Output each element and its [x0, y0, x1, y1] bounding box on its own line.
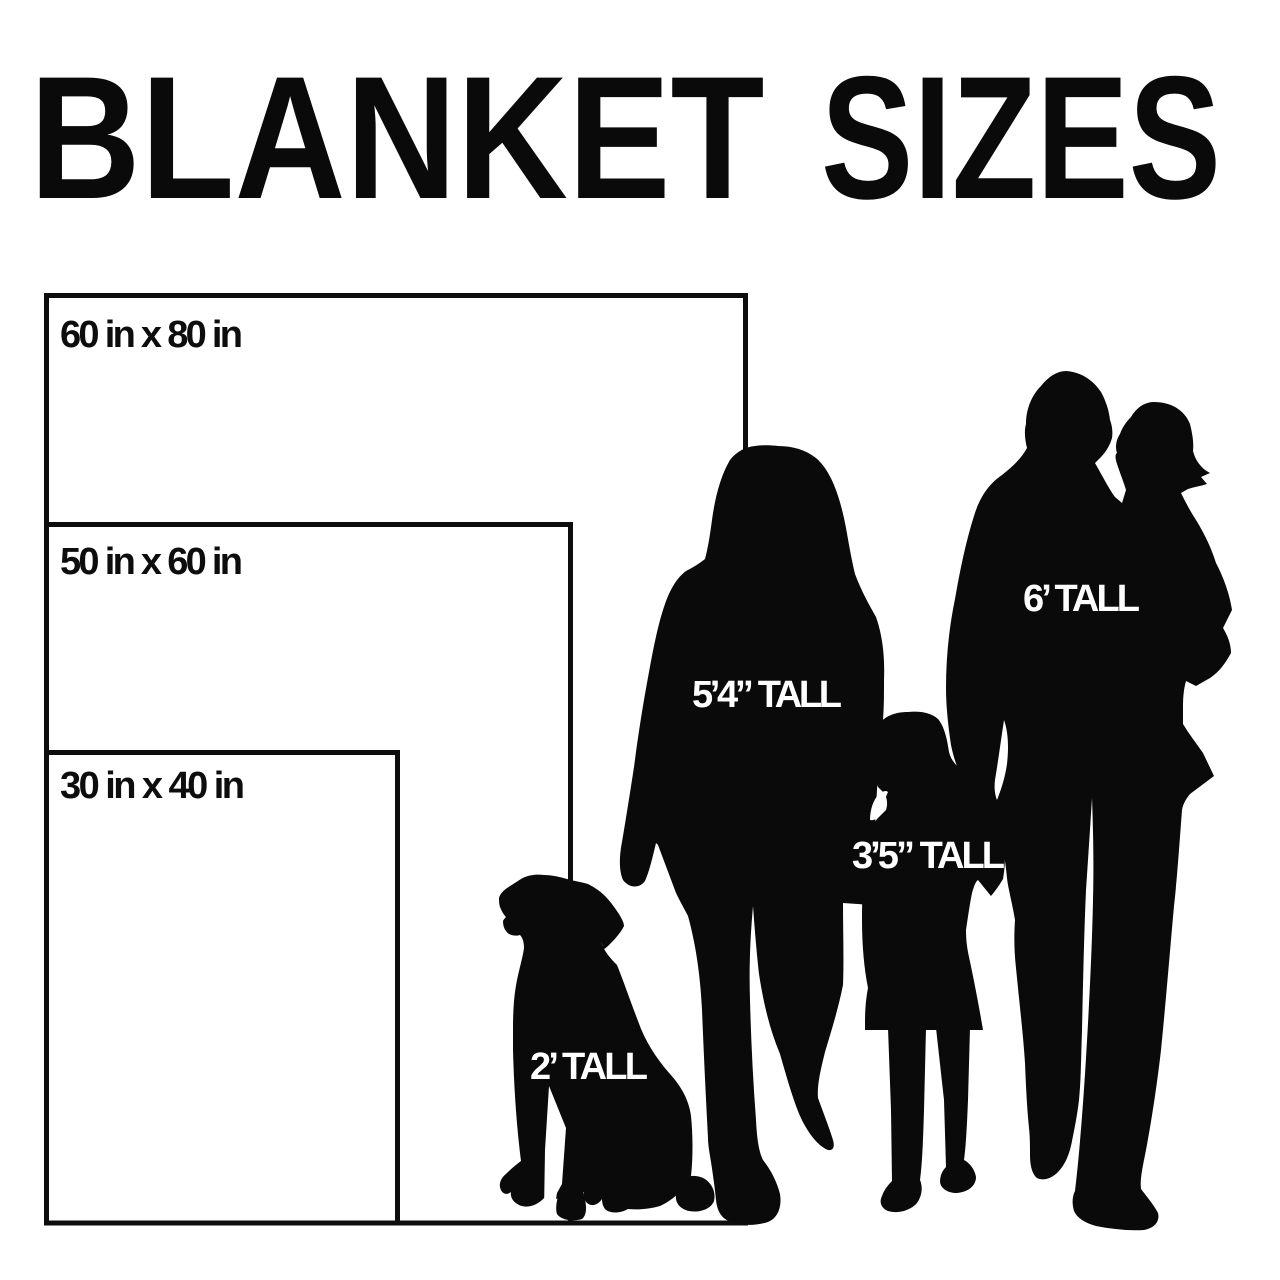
- svg-text:50 in x 60 in: 50 in x 60 in: [60, 541, 243, 583]
- svg-text:BLANKET: BLANKET: [30, 41, 765, 236]
- svg-text:30 in x 40 in: 30 in x 40 in: [60, 765, 245, 807]
- svg-text:SIZES: SIZES: [821, 41, 1221, 236]
- svg-text:5’4” TALL: 5’4” TALL: [692, 674, 842, 716]
- svg-text:2’ TALL: 2’ TALL: [530, 1046, 648, 1088]
- svg-text:3’5” TALL: 3’5” TALL: [852, 835, 1005, 877]
- svg-text:6’ TALL: 6’ TALL: [1023, 578, 1140, 620]
- svg-text:60 in x 80 in: 60 in x 80 in: [60, 314, 243, 356]
